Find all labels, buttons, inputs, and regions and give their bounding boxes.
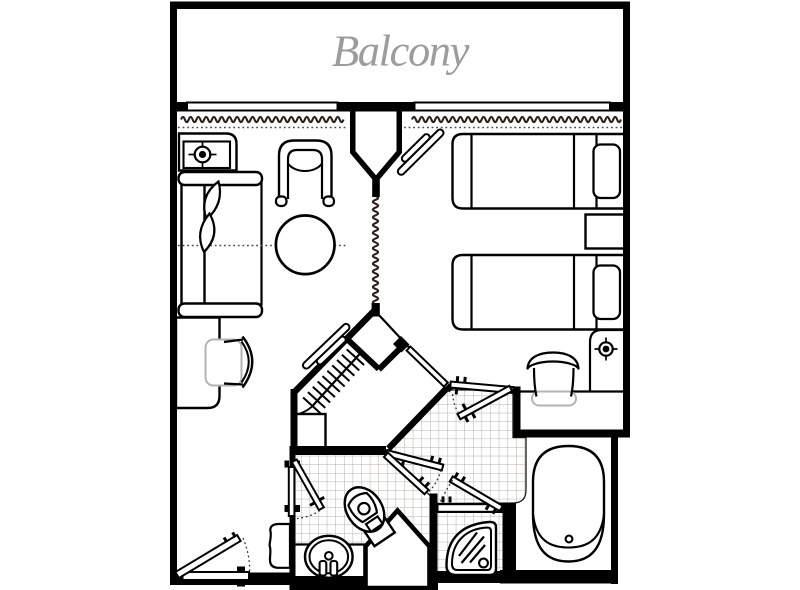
svg-text:Balcony: Balcony [332, 26, 470, 76]
